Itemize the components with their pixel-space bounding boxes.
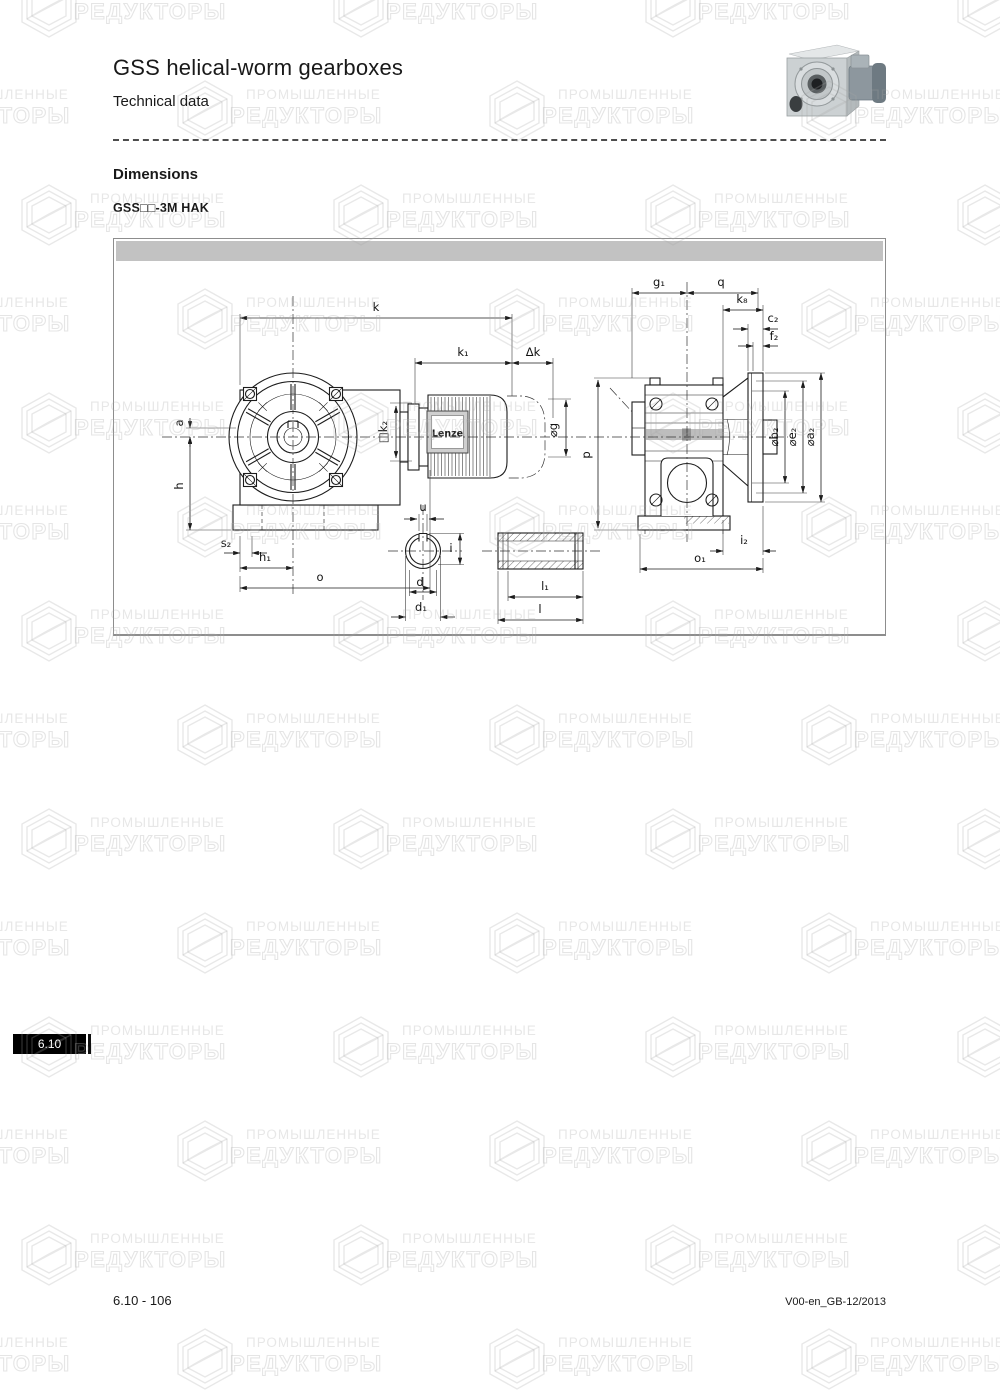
dim-label-f2: f₂ <box>770 329 779 343</box>
watermark-hexagon-icon <box>18 391 80 455</box>
section-tab: 6.10 <box>13 1034 86 1054</box>
watermark-text-line2: РЕДУКТОРЫ <box>0 727 71 753</box>
watermark-text-line2: РЕДУКТОРЫ <box>542 1143 695 1169</box>
watermark-text-line2: РЕДУКТОРЫ <box>230 103 383 129</box>
watermark-tile: ПРОМЫШЛЕННЫЕ РЕДУКТОРЫ <box>642 1015 942 1087</box>
watermark-text-line2: РЕДУКТОРЫ <box>0 519 71 545</box>
watermark-text-line1: ПРОМЫШЛЕННЫЕ <box>0 295 69 310</box>
watermark-tile: ПРОМЫШЛЕННЫЕ РЕДУКТОРЫ <box>954 1015 1000 1087</box>
dim-label-a2: ⌀a₂ <box>803 428 817 447</box>
watermark-hexagon-icon <box>486 703 548 767</box>
dim-label-o: o <box>316 570 323 584</box>
page: ПРОМЫШЛЕННЫЕ РЕДУКТОРЫ ПРОМЫШЛЕННЫЕ РЕДУ… <box>0 0 1000 1395</box>
watermark-text-line1: ПРОМЫШЛЕННЫЕ <box>870 1127 1000 1142</box>
watermark-text-line2: РЕДУКТОРЫ <box>854 727 1000 753</box>
dim-label-h1: h₁ <box>259 550 271 564</box>
watermark-hexagon-icon <box>798 911 860 975</box>
watermark-tile: ПРОМЫШЛЕННЫЕ РЕДУКТОРЫ <box>330 807 630 879</box>
watermark-text-line2: РЕДУКТОРЫ <box>386 0 539 25</box>
watermark-text-line1: ПРОМЫШЛЕННЫЕ <box>246 1335 381 1350</box>
watermark-tile: ПРОМЫШЛЕННЫЕ РЕДУКТОРЫ <box>0 391 6 463</box>
watermark-hexagon-icon <box>486 79 548 143</box>
watermark-tile: ПРОМЫШЛЕННЫЕ РЕДУКТОРЫ <box>954 807 1000 879</box>
front-view: Lenze <box>229 373 545 530</box>
watermark-text-line2: РЕДУКТОРЫ <box>0 311 71 337</box>
watermark-text-line1: ПРОМЫШЛЕННЫЕ <box>0 1127 69 1142</box>
watermark-text-line1: ПРОМЫШЛЕННЫЕ <box>402 815 537 830</box>
bolt-dot <box>799 67 802 70</box>
watermark-tile: ПРОМЫШЛЕННЫЕ РЕДУКТОРЫ <box>0 1119 162 1191</box>
dim-label-k8: k₈ <box>736 292 748 306</box>
watermark-text-line1: ПРОМЫШЛЕННЫЕ <box>0 87 69 102</box>
dim-label-p: p <box>579 451 593 458</box>
watermark-tile: ПРОМЫШЛЕННЫЕ РЕДУКТОРЫ <box>0 183 6 255</box>
dim-label-u: u <box>419 500 426 514</box>
watermark-text-line2: РЕДУКТОРЫ <box>542 935 695 961</box>
bolt-dot <box>831 67 834 70</box>
watermark-text-line1: ПРОМЫШЛЕННЫЕ <box>402 191 537 206</box>
watermark-text-line2: РЕДУКТОРЫ <box>0 1143 71 1169</box>
watermark-text-line1: ПРОМЫШЛЕННЫЕ <box>714 1023 849 1038</box>
watermark-text-line1: ПРОМЫШЛЕННЫЕ <box>0 1335 69 1350</box>
watermark-hexagon-icon <box>798 1119 860 1183</box>
watermark-hexagon-icon <box>174 1327 236 1391</box>
motor-fan-cover <box>872 63 886 103</box>
watermark-text-line2: РЕДУКТОРЫ <box>386 207 539 233</box>
watermark-text-line1: ПРОМЫШЛЕННЫЕ <box>246 919 381 934</box>
watermark-tile: ПРОМЫШЛЕННЫЕ РЕДУКТОРЫ <box>330 1015 630 1087</box>
watermark-tile: ПРОМЫШЛЕННЫЕ РЕДУКТОРЫ <box>0 0 6 47</box>
section-tab-line <box>88 1034 91 1054</box>
watermark-text-line2: РЕДУКТОРЫ <box>386 1247 539 1273</box>
watermark-text-line2: РЕДУКТОРЫ <box>542 727 695 753</box>
watermark-hexagon-icon <box>798 1327 860 1391</box>
watermark-tile: ПРОМЫШЛЕННЫЕ РЕДУКТОРЫ <box>486 1119 786 1191</box>
watermark-text-line1: ПРОМЫШЛЕННЫЕ <box>870 295 1000 310</box>
dim-label-e2: ⌀e₂ <box>785 428 799 447</box>
page-subtitle: Technical data <box>113 93 209 110</box>
watermark-tile: ПРОМЫШЛЕННЫЕ РЕДУКТОРЫ <box>798 703 1000 775</box>
dim-label-dk: Δk <box>526 345 541 359</box>
watermark-hexagon-icon <box>330 0 392 39</box>
watermark-tile: ПРОМЫШЛЕННЫЕ РЕДУКТОРЫ <box>174 1119 474 1191</box>
watermark-tile: ПРОМЫШЛЕННЫЕ РЕДУКТОРЫ <box>798 1119 1000 1191</box>
watermark-text-line1: ПРОМЫШЛЕННЫЕ <box>714 815 849 830</box>
section-heading: Dimensions <box>113 166 198 183</box>
section-tab-label: 6.10 <box>38 1037 61 1051</box>
watermark-hexagon-icon <box>18 1223 80 1287</box>
drawing-header-bar <box>116 241 883 261</box>
watermark-tile: ПРОМЫШЛЕННЫЕ РЕДУКТОРЫ <box>18 0 318 47</box>
watermark-tile: ПРОМЫШЛЕННЫЕ РЕДУКТОРЫ <box>954 599 1000 671</box>
product-photo <box>779 36 891 130</box>
watermark-tile: ПРОМЫШЛЕННЫЕ РЕДУКТОРЫ <box>330 0 630 47</box>
dim-label-g: ⌀g <box>546 423 560 437</box>
watermark-hexagon-icon <box>954 599 1000 663</box>
watermark-text-line2: РЕДУКТОРЫ <box>230 935 383 961</box>
dim-label-k: k <box>373 300 380 314</box>
technical-drawing: Lenze <box>113 262 886 633</box>
watermark-tile: ПРОМЫШЛЕННЫЕ РЕДУКТОРЫ <box>642 807 942 879</box>
watermark-text-line2: РЕДУКТОРЫ <box>74 831 227 857</box>
watermark-text-line2: РЕДУКТОРЫ <box>698 1247 851 1273</box>
watermark-text-line1: ПРОМЫШЛЕННЫЕ <box>558 711 693 726</box>
watermark-tile: ПРОМЫШЛЕННЫЕ РЕДУКТОРЫ <box>486 1327 786 1395</box>
bolt-dot <box>831 97 834 100</box>
watermark-tile: ПРОМЫШЛЕННЫЕ РЕДУКТОРЫ <box>0 599 6 671</box>
watermark-hexagon-icon <box>954 183 1000 247</box>
lower-bore <box>790 96 803 112</box>
watermark-text-line1: ПРОМЫШЛЕННЫЕ <box>402 1023 537 1038</box>
watermark-tile: ПРОМЫШЛЕННЫЕ РЕДУКТОРЫ <box>18 807 318 879</box>
watermark-hexagon-icon <box>798 703 860 767</box>
dim-label-s2: s₂ <box>221 536 232 550</box>
watermark-text-line1: ПРОМЫШЛЕННЫЕ <box>402 1231 537 1246</box>
document-version: V00-en_GB-12/2013 <box>785 1296 886 1308</box>
page-title: GSS helical-worm gearboxes <box>113 55 403 81</box>
watermark-text-line1: ПРОМЫШЛЕННЫЕ <box>0 919 69 934</box>
watermark-hexagon-icon <box>174 1119 236 1183</box>
watermark-tile: ПРОМЫШЛЕННЫЕ РЕДУКТОРЫ <box>642 1223 942 1295</box>
dim-label-h: h <box>172 482 186 489</box>
watermark-text-line2: РЕДУКТОРЫ <box>542 103 695 129</box>
watermark-text-line2: РЕДУКТОРЫ <box>698 207 851 233</box>
watermark-text-line1: ПРОМЫШЛЕННЫЕ <box>714 191 849 206</box>
dim-label-i: i <box>449 541 452 555</box>
watermark-tile: ПРОМЫШЛЕННЫЕ РЕДУКТОРЫ <box>954 391 1000 463</box>
watermark-tile: ПРОМЫШЛЕННЫЕ РЕДУКТОРЫ <box>0 911 162 983</box>
watermark-tile: ПРОМЫШЛЕННЫЕ РЕДУКТОРЫ <box>0 1015 6 1087</box>
watermark-text-line2: РЕДУКТОРЫ <box>0 103 71 129</box>
watermark-hexagon-icon <box>642 0 704 39</box>
watermark-text-line1: ПРОМЫШЛЕННЫЕ <box>558 1335 693 1350</box>
watermark-hexagon-icon <box>174 703 236 767</box>
watermark-tile: ПРОМЫШЛЕННЫЕ РЕДУКТОРЫ <box>174 1327 474 1395</box>
watermark-tile: ПРОМЫШЛЕННЫЕ РЕДУКТОРЫ <box>0 1327 162 1395</box>
watermark-text-line2: РЕДУКТОРЫ <box>386 1039 539 1065</box>
watermark-tile: ПРОМЫШЛЕННЫЕ РЕДУКТОРЫ <box>486 911 786 983</box>
dim-label-g1: g₁ <box>653 275 665 289</box>
watermark-hexagon-icon <box>954 0 1000 39</box>
watermark-text-line2: РЕДУКТОРЫ <box>230 1351 383 1377</box>
watermark-tile: ПРОМЫШЛЕННЫЕ РЕДУКТОРЫ <box>174 703 474 775</box>
shaft-bore <box>812 79 823 90</box>
watermark-text-line1: ПРОМЫШЛЕННЫЕ <box>90 815 225 830</box>
watermark-hexagon-icon <box>954 807 1000 871</box>
watermark-hexagon-icon <box>330 1223 392 1287</box>
watermark-text-line1: ПРОМЫШЛЕННЫЕ <box>870 503 1000 518</box>
watermark-tile: ПРОМЫШЛЕННЫЕ РЕДУКТОРЫ <box>330 1223 630 1295</box>
watermark-text-line2: РЕДУКТОРЫ <box>854 1351 1000 1377</box>
watermark-text-line1: ПРОМЫШЛЕННЫЕ <box>870 711 1000 726</box>
model-label: GSS□□-3M HAK <box>113 201 209 215</box>
page-number: 6.10 - 106 <box>113 1293 172 1308</box>
watermark-text-line1: ПРОМЫШЛЕННЫЕ <box>90 1023 225 1038</box>
watermark-text-line1: ПРОМЫШЛЕННЫЕ <box>558 1127 693 1142</box>
watermark-text-line1: ПРОМЫШЛЕННЫЕ <box>870 1335 1000 1350</box>
watermark-hexagon-icon <box>486 1327 548 1391</box>
watermark-text-line1: ПРОМЫШЛЕННЫЕ <box>558 919 693 934</box>
rear-view <box>610 373 777 534</box>
watermark-text-line1: ПРОМЫШЛЕННЫЕ <box>246 1127 381 1142</box>
watermark-text-line2: РЕДУКТОРЫ <box>230 727 383 753</box>
motor-side-view: Lenze <box>427 395 545 478</box>
watermark-text-line1: ПРОМЫШЛЕННЫЕ <box>558 87 693 102</box>
watermark-text-line2: РЕДУКТОРЫ <box>74 1039 227 1065</box>
watermark-text-line1: ПРОМЫШЛЕННЫЕ <box>246 87 381 102</box>
watermark-text-line2: РЕДУКТОРЫ <box>698 831 851 857</box>
watermark-hexagon-icon <box>330 807 392 871</box>
watermark-text-line1: ПРОМЫШЛЕННЫЕ <box>246 711 381 726</box>
watermark-text-line2: РЕДУКТОРЫ <box>74 0 227 25</box>
watermark-tile: ПРОМЫШЛЕННЫЕ РЕДУКТОРЫ <box>954 0 1000 47</box>
dim-label-a: a <box>172 419 186 426</box>
watermark-hexagon-icon <box>330 1015 392 1079</box>
watermark-text-line2: РЕДУКТОРЫ <box>698 0 851 25</box>
watermark-text-line2: РЕДУКТОРЫ <box>854 935 1000 961</box>
watermark-hexagon-icon <box>174 79 236 143</box>
watermark-tile: ПРОМЫШЛЕННЫЕ РЕДУКТОРЫ <box>486 703 786 775</box>
watermark-text-line2: РЕДУКТОРЫ <box>386 831 539 857</box>
dim-label-b2: ⌀b₂ <box>767 428 781 447</box>
watermark-text-line1: ПРОМЫШЛЕННЫЕ <box>0 503 69 518</box>
dim-label-o1: o₁ <box>694 551 706 565</box>
watermark-hexagon-icon <box>642 807 704 871</box>
watermark-hexagon-icon <box>642 1223 704 1287</box>
watermark-tile: ПРОМЫШЛЕННЫЕ РЕДУКТОРЫ <box>798 1327 1000 1395</box>
watermark-hexagon-icon <box>18 599 80 663</box>
watermark-text-line1: ПРОМЫШЛЕННЫЕ <box>0 711 69 726</box>
watermark-hexagon-icon <box>18 807 80 871</box>
dim-label-d: d <box>416 575 423 589</box>
watermark-hexagon-icon <box>174 911 236 975</box>
watermark-tile: ПРОМЫШЛЕННЫЕ РЕДУКТОРЫ <box>954 183 1000 255</box>
terminal-box <box>851 55 869 68</box>
watermark-text-line2: РЕДУКТОРЫ <box>854 1143 1000 1169</box>
watermark-tile: ПРОМЫШЛЕННЫЕ РЕДУКТОРЫ <box>18 1223 318 1295</box>
motor-brand-label: Lenze <box>432 429 463 440</box>
watermark-text-line2: РЕДУКТОРЫ <box>698 1039 851 1065</box>
watermark-text-line2: РЕДУКТОРЫ <box>230 1143 383 1169</box>
watermark-tile: ПРОМЫШЛЕННЫЕ РЕДУКТОРЫ <box>798 911 1000 983</box>
dim-label-q: q <box>717 275 724 289</box>
watermark-text-line1: ПРОМЫШЛЕННЫЕ <box>90 1231 225 1246</box>
watermark-hexagon-icon <box>642 1015 704 1079</box>
watermark-tile: ПРОМЫШЛЕННЫЕ РЕДУКТОРЫ <box>0 703 162 775</box>
watermark-hexagon-icon <box>486 911 548 975</box>
watermark-hexagon-icon <box>18 0 80 39</box>
dim-label-c2: c₂ <box>768 311 779 325</box>
watermark-text-line2: РЕДУКТОРЫ <box>0 935 71 961</box>
dim-label-i2: i₂ <box>740 533 748 547</box>
dim-label-l: l <box>538 602 541 616</box>
watermark-text-line2: РЕДУКТОРЫ <box>542 1351 695 1377</box>
separator-dashed-line <box>113 139 886 141</box>
watermark-hexagon-icon <box>954 391 1000 455</box>
dim-label-l1: l₁ <box>541 579 549 593</box>
watermark-text-line1: ПРОМЫШЛЕННЫЕ <box>870 919 1000 934</box>
watermark-text-line1: ПРОМЫШЛЕННЫЕ <box>714 1231 849 1246</box>
dim-label-k1: k₁ <box>457 345 468 359</box>
watermark-tile: ПРОМЫШЛЕННЫЕ РЕДУКТОРЫ <box>0 807 6 879</box>
watermark-tile: ПРОМЫШЛЕННЫЕ РЕДУКТОРЫ <box>954 1223 1000 1295</box>
watermark-hexagon-icon <box>954 1015 1000 1079</box>
dim-label-k2: □k₂ <box>376 421 390 443</box>
watermark-text-line2: РЕДУКТОРЫ <box>0 1351 71 1377</box>
watermark-hexagon-icon <box>18 183 80 247</box>
watermark-text-line2: РЕДУКТОРЫ <box>74 1247 227 1273</box>
watermark-hexagon-icon <box>486 1119 548 1183</box>
dim-label-d1: d₁ <box>415 600 427 614</box>
watermark-tile: ПРОМЫШЛЕННЫЕ РЕДУКТОРЫ <box>174 911 474 983</box>
motor-body <box>849 66 875 100</box>
watermark-hexagon-icon <box>954 1223 1000 1287</box>
watermark-tile: ПРОМЫШЛЕННЫЕ РЕДУКТОРЫ <box>0 1223 6 1295</box>
